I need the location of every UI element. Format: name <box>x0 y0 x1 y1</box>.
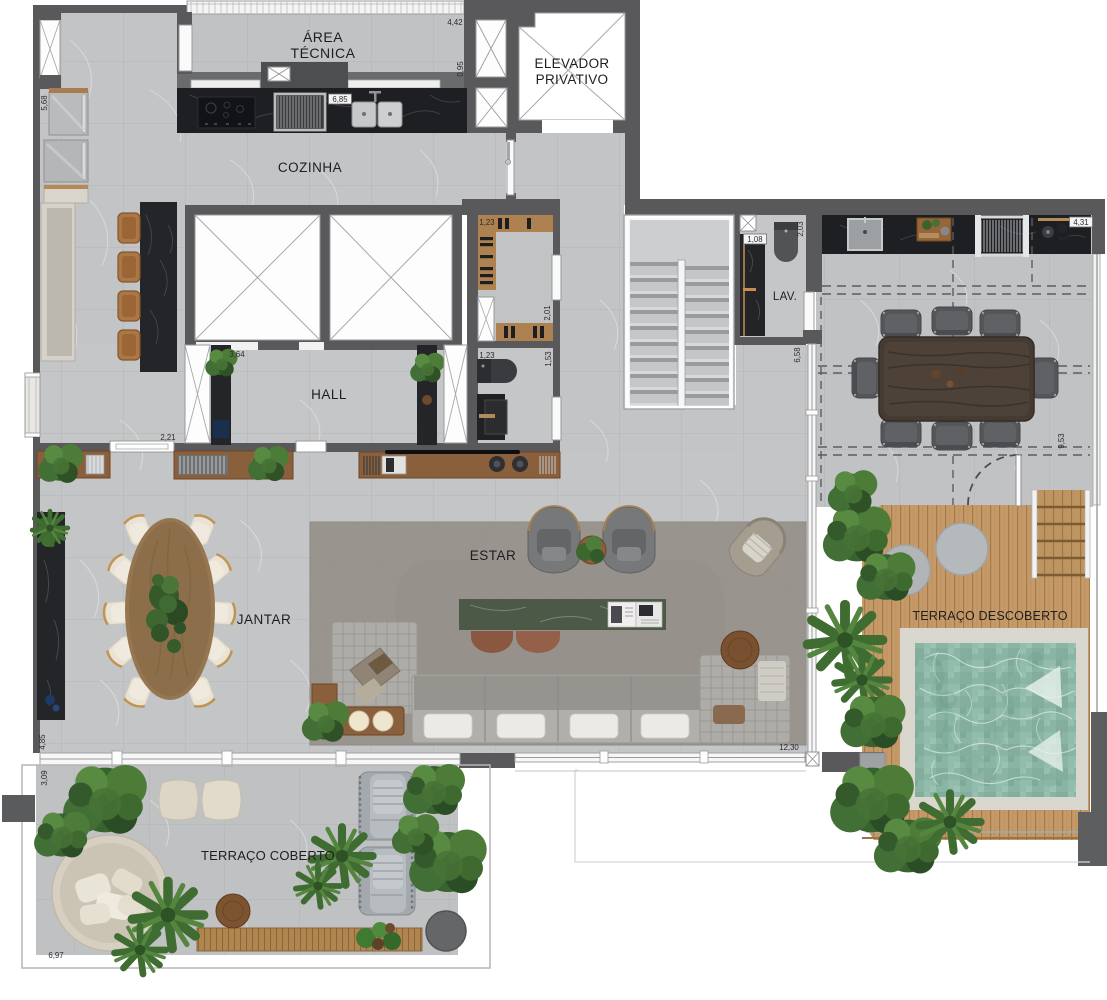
svg-text:3,64: 3,64 <box>229 350 245 359</box>
svg-text:1,54: 1,54 <box>416 426 425 442</box>
svg-text:4,42: 4,42 <box>447 18 462 27</box>
svg-text:TERRAÇO DESCOBERTO: TERRAÇO DESCOBERTO <box>912 609 1067 623</box>
svg-text:ÁREA: ÁREA <box>303 29 343 45</box>
svg-text:LAV.: LAV. <box>773 291 797 303</box>
svg-text:12,30: 12,30 <box>779 743 799 752</box>
svg-text:2,01: 2,01 <box>543 305 552 320</box>
svg-text:ESTAR: ESTAR <box>470 548 517 563</box>
svg-text:PRIVATIVO: PRIVATIVO <box>536 72 609 87</box>
svg-text:JANTAR: JANTAR <box>237 612 292 627</box>
svg-text:TERRAÇO COBERTO: TERRAÇO COBERTO <box>201 848 335 863</box>
svg-text:6,58: 6,58 <box>793 347 802 362</box>
svg-text:TÉCNICA: TÉCNICA <box>291 45 356 61</box>
svg-text:9,53: 9,53 <box>1057 433 1066 448</box>
svg-text:6,85: 6,85 <box>332 95 348 104</box>
svg-text:HALL: HALL <box>311 387 347 402</box>
svg-text:4,31: 4,31 <box>1073 218 1088 227</box>
svg-text:2,21: 2,21 <box>160 433 175 442</box>
svg-text:5,68: 5,68 <box>40 95 49 110</box>
svg-text:6,97: 6,97 <box>48 951 63 960</box>
svg-text:1,23: 1,23 <box>479 351 494 360</box>
svg-text:ELEVADOR: ELEVADOR <box>535 56 610 71</box>
svg-text:4,85: 4,85 <box>38 734 47 750</box>
svg-text:1,53: 1,53 <box>544 351 553 366</box>
svg-text:3,09: 3,09 <box>40 770 49 785</box>
svg-text:2,03: 2,03 <box>796 221 805 236</box>
svg-text:1,23: 1,23 <box>479 218 494 227</box>
svg-text:1,08: 1,08 <box>747 235 762 244</box>
svg-text:COZINHA: COZINHA <box>278 160 342 175</box>
svg-text:0,95: 0,95 <box>456 61 465 77</box>
